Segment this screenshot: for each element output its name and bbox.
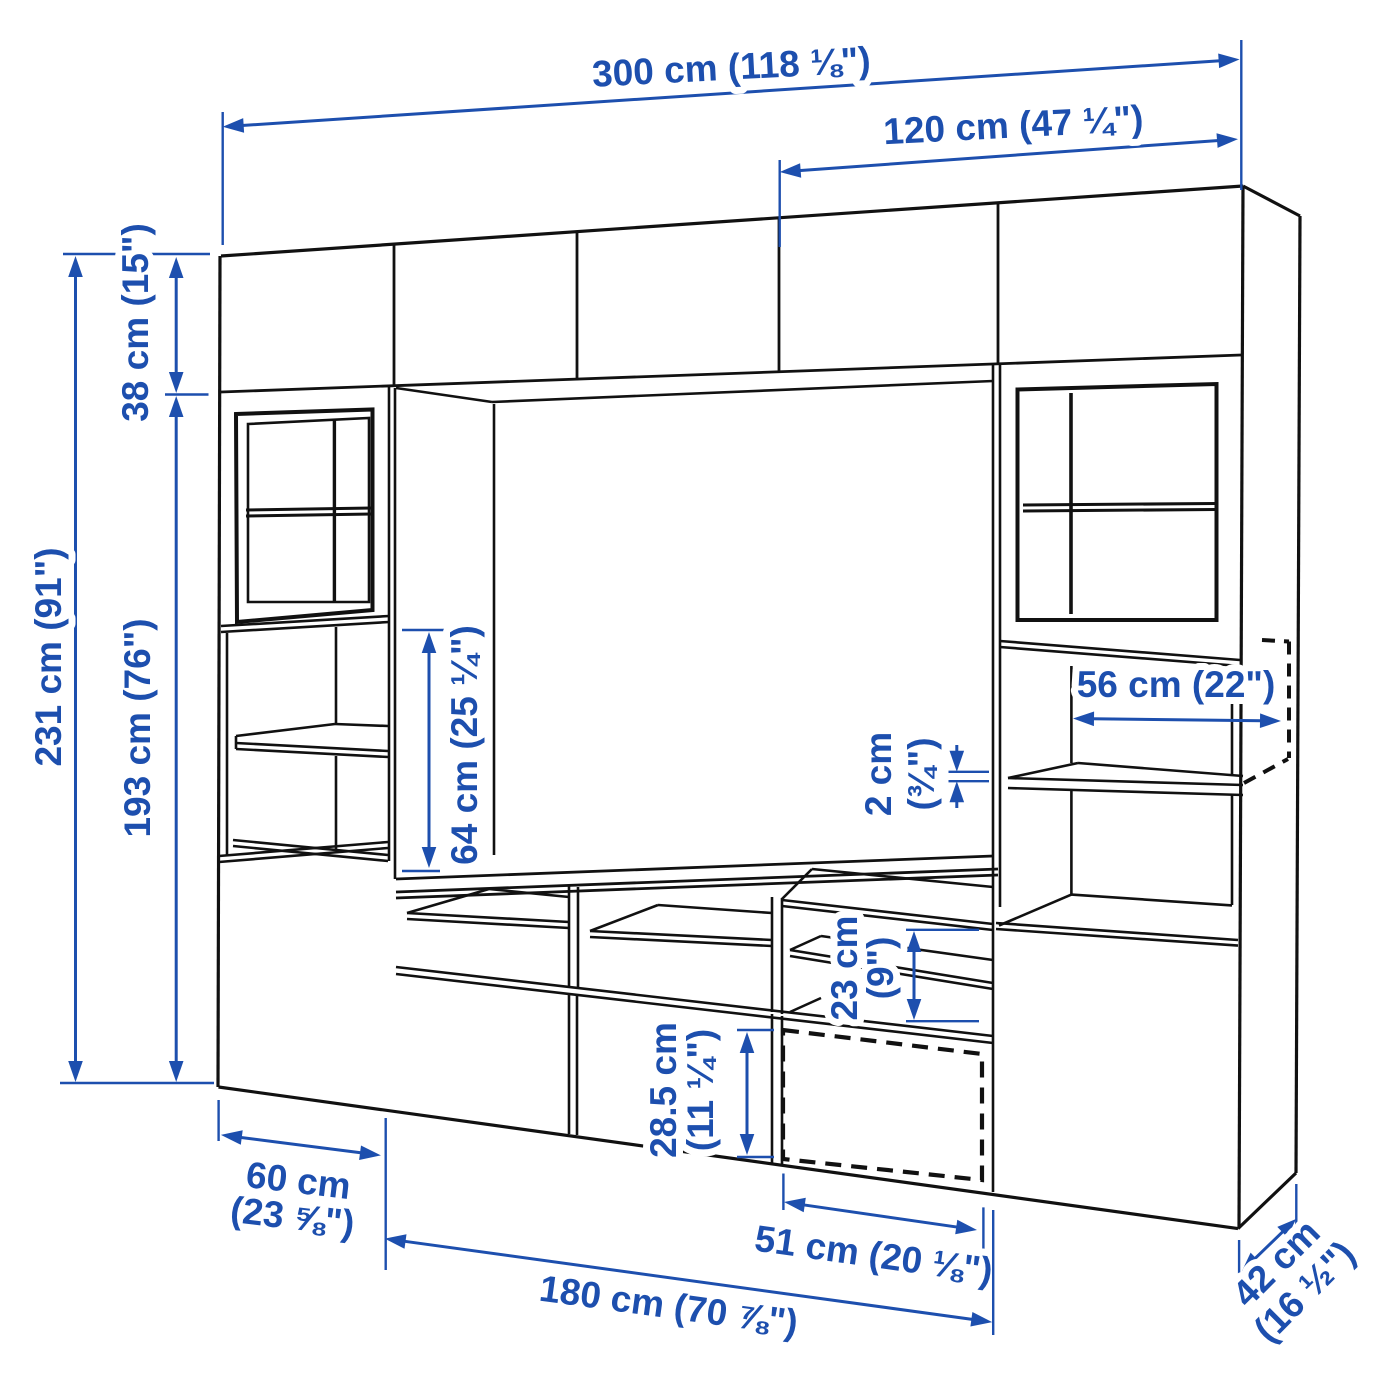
svg-text:56 cm (22"): 56 cm (22") [1077,664,1276,705]
svg-text:193 cm (76"): 193 cm (76") [117,618,158,837]
svg-text:38 cm (15"): 38 cm (15") [115,223,156,422]
svg-text:231 cm (91"): 231 cm (91") [28,547,69,766]
svg-text:28.5 cm(11 ¼"): 28.5 cm(11 ¼") [643,1022,721,1158]
svg-text:64 cm (25 ¼"): 64 cm (25 ¼") [444,625,485,865]
